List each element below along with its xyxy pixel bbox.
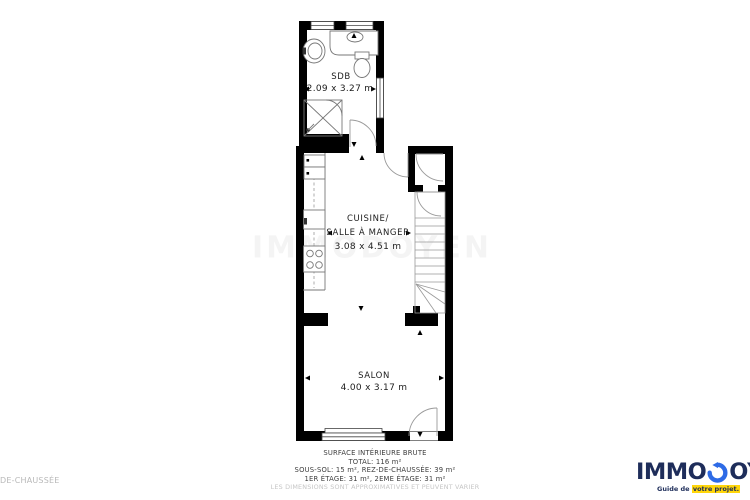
floor-name-label: DE-CHAUSSÉE [0,476,60,485]
window-sdb-top-2 [346,22,373,30]
dim-arrow-down-icon [359,306,364,311]
door-vestibule [416,154,443,181]
surface-detail-1: SOUS-SOL: 15 m², REZ-DE-CHAUSSÉE: 39 m² [295,466,456,474]
room-label-salon: SALON [358,371,390,381]
window-sdb-top-1 [311,22,334,30]
surface-total: TOTAL: 116 m² [348,458,401,466]
window-sdb-right [377,78,384,118]
room-dims-sdb: 2.09 x 3.27 m [307,84,374,94]
wall-sdb-left [299,21,307,142]
dim-arrow-up-icon [360,155,365,160]
pedestal-sink [303,39,326,63]
toilet [354,52,370,78]
wall-sdb-bottom-chunk [299,134,349,153]
dim-arrow-right-icon [439,376,444,381]
dim-arrow-up-icon [418,330,423,335]
wall-salon-top-right [405,313,438,326]
logo-d-arrow-icon [707,462,728,483]
room-dims-cuisine: 3.08 x 4.51 m [335,242,402,252]
staircase [415,192,445,313]
room-label-cuisine-2: SALLE À MANGER [326,228,409,238]
floor-plan-page: IMMODOYEN [0,0,750,500]
logo-tagline: Guide de votre projet. [657,485,740,493]
wall-vestibule-bottom-right [438,185,453,192]
dim-arrow-left-icon [305,376,310,381]
room-dims-salon: 4.00 x 3.17 m [341,383,408,393]
door-stairs [417,192,441,216]
kitchen-fixtures [303,153,325,290]
logo-text-part2: OYEN [729,459,750,485]
wall-vestibule-bottom-left [408,185,423,192]
surface-title: SURFACE INTÉRIEURE BRUTE [323,449,426,457]
wall-main-left [296,146,304,441]
door-kitchen-back [384,153,408,177]
winder-tread-2 [416,284,445,304]
shower [304,100,342,136]
room-label-sdb: SDB [331,72,351,82]
logo-tagline-highlight: votre projet. [692,485,740,493]
dim-arrow-down-icon [352,142,357,147]
dimensions-disclaimer: LES DIMENSIONS SONT APPROXIMATIVES ET PE… [271,483,480,491]
surface-detail-2: 1ER ÉTAGE: 31 m², 2EME ÉTAGE: 31 m² [305,475,446,483]
wall-salon-top-left [296,313,328,326]
logo-tagline-pre: Guide de [657,485,692,493]
immodoyen-logo: IMMO OYEN [636,460,750,484]
kitchen-sink [304,210,326,229]
room-label-cuisine-1: CUISINE/ [347,214,389,224]
stove [304,246,326,272]
logo-text-part1: IMMO [636,459,706,485]
